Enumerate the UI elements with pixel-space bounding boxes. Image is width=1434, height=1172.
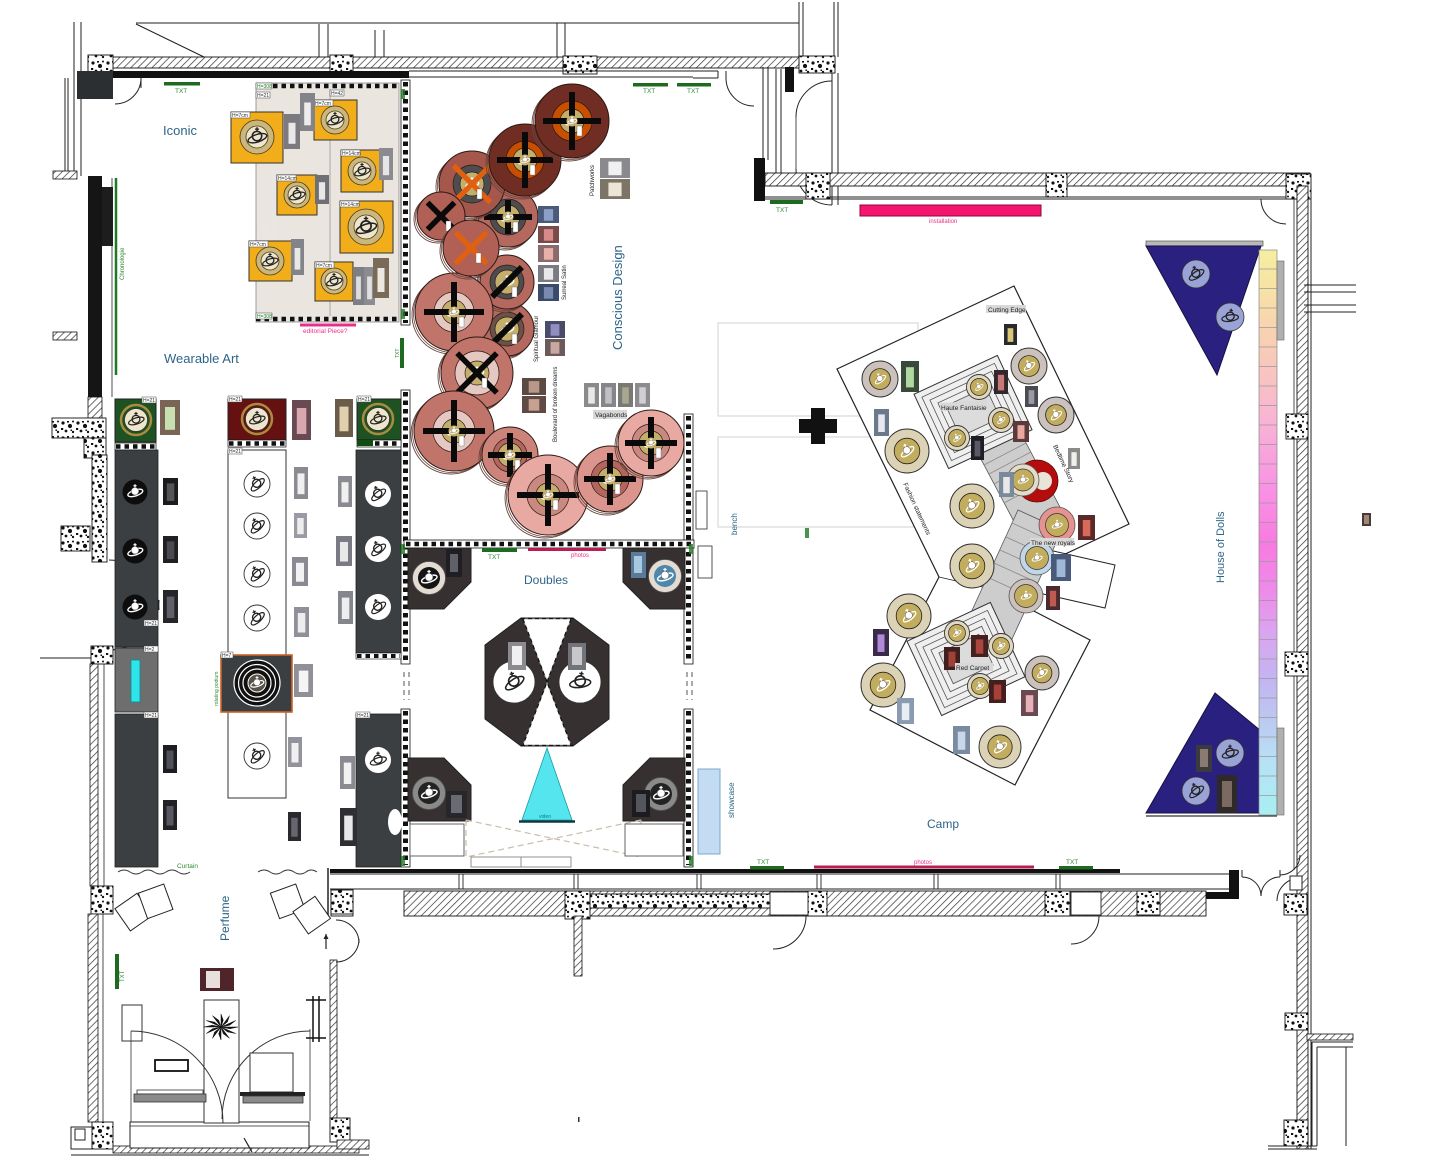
svg-text:Red Carpet: Red Carpet	[956, 665, 989, 672]
svg-text:H=21: H=21	[229, 397, 241, 403]
svg-text:Haute Fantaisie: Haute Fantaisie	[941, 405, 987, 412]
svg-text:TXT: TXT	[757, 859, 769, 866]
svg-text:Iconic: Iconic	[163, 123, 197, 138]
svg-text:H=21: H=21	[145, 713, 157, 719]
svg-text:TXT: TXT	[687, 88, 699, 95]
svg-text:H=42: H=42	[331, 91, 343, 97]
svg-text:H=21: H=21	[358, 397, 370, 403]
svg-text:showcase: showcase	[727, 782, 736, 818]
svg-text:Patchworks: Patchworks	[590, 165, 596, 196]
svg-text:Surreal Satin: Surreal Satin	[562, 265, 568, 300]
svg-text:H=14cm: H=14cm	[341, 202, 360, 208]
svg-text:TXT: TXT	[776, 207, 788, 214]
svg-text:Wearable Art: Wearable Art	[164, 351, 239, 366]
svg-text:Curtain: Curtain	[177, 863, 198, 870]
svg-text:Chronologie: Chronologie	[120, 247, 126, 280]
svg-text:H=2: H=2	[145, 647, 155, 653]
svg-text:H=7cm: H=7cm	[315, 101, 331, 107]
svg-text:H=21: H=21	[257, 93, 269, 99]
svg-text:H=14cm: H=14cm	[278, 176, 297, 182]
svg-text:H=7cm: H=7cm	[232, 113, 248, 119]
svg-text:Perfume: Perfume	[218, 895, 232, 941]
svg-text:photos: photos	[914, 860, 932, 866]
svg-text:H=14cm: H=14cm	[342, 151, 361, 157]
svg-text:H=21: H=21	[145, 621, 157, 627]
svg-text:Conscious Design: Conscious Design	[610, 245, 625, 350]
svg-text:Doubles: Doubles	[524, 573, 568, 587]
svg-text:Cutting Edge: Cutting Edge	[988, 307, 1026, 314]
svg-text:House of Dolls: House of Dolls	[1215, 511, 1227, 583]
svg-text:Spiritual Glamour: Spiritual Glamour	[534, 316, 540, 362]
svg-text:photos: photos	[571, 553, 589, 559]
svg-text:bench: bench	[730, 513, 739, 535]
svg-text:H=21: H=21	[229, 449, 241, 455]
svg-text:editorial Piece?: editorial Piece?	[303, 328, 348, 335]
svg-text:rotating podium: rotating podium	[214, 672, 220, 706]
svg-text:installation: installation	[929, 219, 957, 225]
svg-text:TXT: TXT	[1066, 859, 1078, 866]
svg-text:H=7cm: H=7cm	[316, 263, 332, 269]
svg-text:Vagabonds: Vagabonds	[595, 412, 628, 419]
svg-text:TXT: TXT	[488, 554, 500, 561]
svg-text:The new royals: The new royals	[1031, 540, 1076, 547]
svg-text:TXT: TXT	[175, 88, 187, 95]
svg-text:H=7: H=7	[222, 653, 232, 659]
svg-text:H=308: H=308	[257, 314, 272, 320]
svg-text:H=21: H=21	[357, 713, 369, 719]
svg-text:Boulevard of broken dreams: Boulevard of broken dreams	[553, 367, 559, 442]
svg-text:TXT: TXT	[395, 349, 401, 358]
svg-text:TXT: TXT	[643, 88, 655, 95]
svg-text:Camp: Camp	[927, 817, 959, 831]
svg-text:video: video	[539, 814, 551, 820]
svg-text:2018: 2018	[263, 222, 270, 238]
svg-text:H=21: H=21	[143, 398, 155, 404]
svg-text:H=308: H=308	[257, 84, 272, 90]
svg-text:TXT: TXT	[120, 970, 126, 982]
svg-text:H=7cm: H=7cm	[250, 242, 266, 248]
